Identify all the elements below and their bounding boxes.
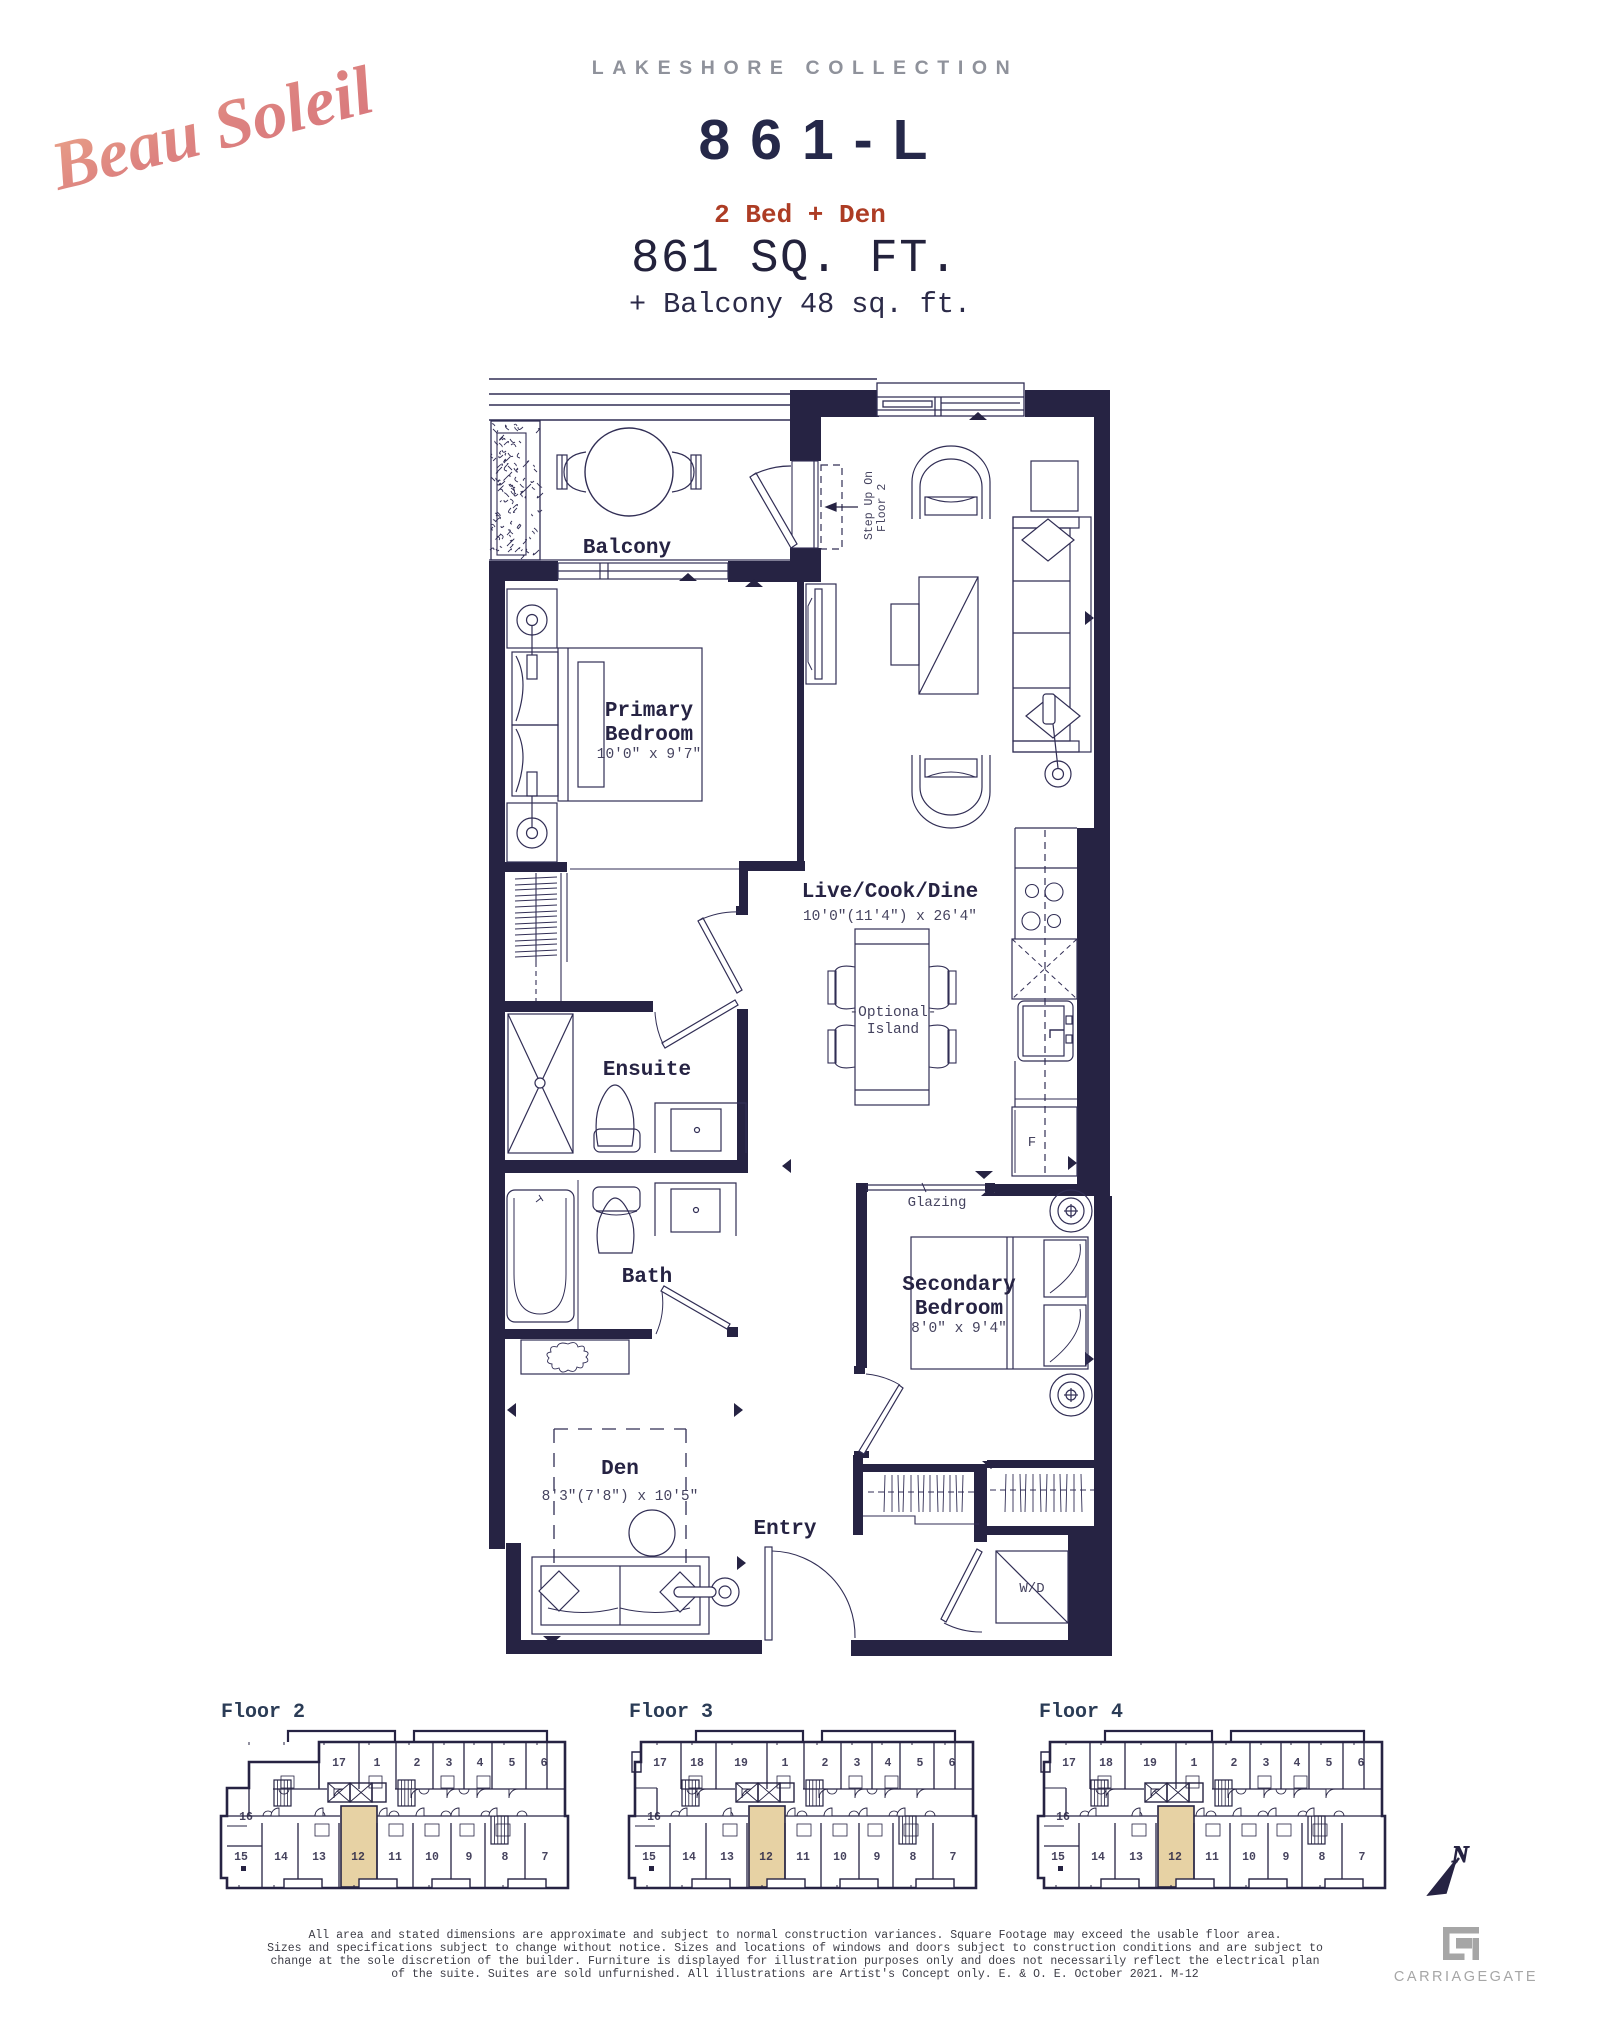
svg-text:Step Up On: Step Up On	[863, 471, 876, 540]
svg-text:2: 2	[414, 1757, 421, 1770]
svg-text:4: 4	[1294, 1757, 1301, 1770]
svg-text:17: 17	[653, 1757, 667, 1770]
svg-text:8: 8	[502, 1851, 509, 1864]
svg-text:10: 10	[1242, 1851, 1256, 1864]
svg-text:16: 16	[647, 1811, 661, 1824]
svg-text:12: 12	[759, 1851, 773, 1864]
svg-text:1: 1	[782, 1757, 789, 1770]
svg-text:Floor 3: Floor 3	[629, 1701, 713, 1724]
svg-text:10: 10	[833, 1851, 847, 1864]
svg-text:12: 12	[351, 1851, 365, 1864]
svg-text:11: 11	[1205, 1851, 1219, 1864]
svg-text:Entry: Entry	[753, 1518, 816, 1541]
svg-text:2: 2	[822, 1757, 829, 1770]
svg-text:14: 14	[274, 1851, 288, 1864]
svg-text:Bedroom: Bedroom	[605, 724, 693, 747]
svg-text:Ensuite: Ensuite	[603, 1059, 691, 1082]
svg-text:7: 7	[542, 1851, 549, 1864]
svg-text:1: 1	[374, 1757, 381, 1770]
svg-text:9: 9	[1283, 1851, 1290, 1864]
svg-text:18: 18	[690, 1757, 704, 1770]
svg-text:Sizes and specifications subje: Sizes and specifications subject to chan…	[267, 1942, 1323, 1955]
svg-text:9: 9	[874, 1851, 881, 1864]
svg-text:8'0" x 9'4": 8'0" x 9'4"	[911, 1321, 1007, 1337]
svg-text:CARRIAGEGATE: CARRIAGEGATE	[1394, 1969, 1538, 1985]
svg-text:15: 15	[1051, 1851, 1065, 1864]
svg-text:Secondary: Secondary	[902, 1274, 1016, 1297]
svg-text:11: 11	[388, 1851, 402, 1864]
svg-text:13: 13	[720, 1851, 734, 1864]
svg-text:Floor 4: Floor 4	[1039, 1701, 1123, 1724]
svg-text:Bedroom: Bedroom	[915, 1298, 1003, 1321]
svg-text:5: 5	[917, 1757, 924, 1770]
svg-text:14: 14	[1091, 1851, 1105, 1864]
svg-text:Bath: Bath	[622, 1266, 672, 1289]
svg-text:16: 16	[1056, 1811, 1070, 1824]
svg-text:Balcony: Balcony	[583, 537, 672, 560]
svg-text:6: 6	[1358, 1757, 1365, 1770]
svg-text:9: 9	[466, 1851, 473, 1864]
svg-text:F: F	[1028, 1135, 1036, 1151]
svg-text:Primary: Primary	[605, 700, 694, 723]
svg-text:10'0" x 9'7": 10'0" x 9'7"	[597, 747, 701, 763]
svg-text:W/D: W/D	[1019, 1581, 1044, 1597]
svg-text:17: 17	[1062, 1757, 1076, 1770]
svg-text:5: 5	[509, 1757, 516, 1770]
svg-text:4: 4	[885, 1757, 892, 1770]
svg-text:3: 3	[854, 1757, 861, 1770]
svg-text:14: 14	[682, 1851, 696, 1864]
svg-text:7: 7	[1359, 1851, 1366, 1864]
svg-text:Island: Island	[867, 1022, 919, 1038]
svg-text:19: 19	[734, 1757, 748, 1770]
svg-text:15: 15	[642, 1851, 656, 1864]
svg-text:7: 7	[950, 1851, 957, 1864]
svg-text:19: 19	[1143, 1757, 1157, 1770]
svg-text:17: 17	[332, 1757, 346, 1770]
svg-text:10: 10	[425, 1851, 439, 1864]
svg-text:11: 11	[796, 1851, 810, 1864]
svg-text:6: 6	[541, 1757, 548, 1770]
svg-text:12: 12	[1168, 1851, 1182, 1864]
svg-text:Floor 2: Floor 2	[221, 1701, 305, 1724]
svg-text:4: 4	[477, 1757, 484, 1770]
svg-text:N: N	[1451, 1842, 1470, 1867]
svg-text:2: 2	[1231, 1757, 1238, 1770]
svg-text:Glazing: Glazing	[908, 1195, 967, 1211]
svg-text:change at the sole discretion: change at the sole discretion of the bui…	[271, 1955, 1320, 1968]
svg-text:3: 3	[1263, 1757, 1270, 1770]
svg-text:6: 6	[949, 1757, 956, 1770]
svg-text:3: 3	[446, 1757, 453, 1770]
svg-text:13: 13	[1129, 1851, 1143, 1864]
svg-text:16: 16	[239, 1811, 253, 1824]
svg-text:Live/Cook/Dine: Live/Cook/Dine	[802, 881, 978, 904]
svg-text:15: 15	[234, 1851, 248, 1864]
svg-text:18: 18	[1099, 1757, 1113, 1770]
svg-text:Den: Den	[601, 1458, 639, 1481]
svg-text:10'0"(11'4") x 26'4": 10'0"(11'4") x 26'4"	[803, 909, 977, 925]
svg-text:8: 8	[1319, 1851, 1326, 1864]
svg-text:8'3"(7'8") x 10'5": 8'3"(7'8") x 10'5"	[542, 1489, 699, 1505]
svg-text:of the suite. Suites are sold: of the suite. Suites are sold unfurnishe…	[391, 1968, 1199, 1981]
svg-text:1: 1	[1191, 1757, 1198, 1770]
svg-text:All area and stated dimensions: All area and stated dimensions are appro…	[308, 1929, 1281, 1942]
svg-text:-Optional-: -Optional-	[849, 1005, 936, 1021]
svg-text:13: 13	[312, 1851, 326, 1864]
svg-text:5: 5	[1326, 1757, 1333, 1770]
svg-text:Floor 2: Floor 2	[876, 484, 889, 532]
svg-text:8: 8	[910, 1851, 917, 1864]
